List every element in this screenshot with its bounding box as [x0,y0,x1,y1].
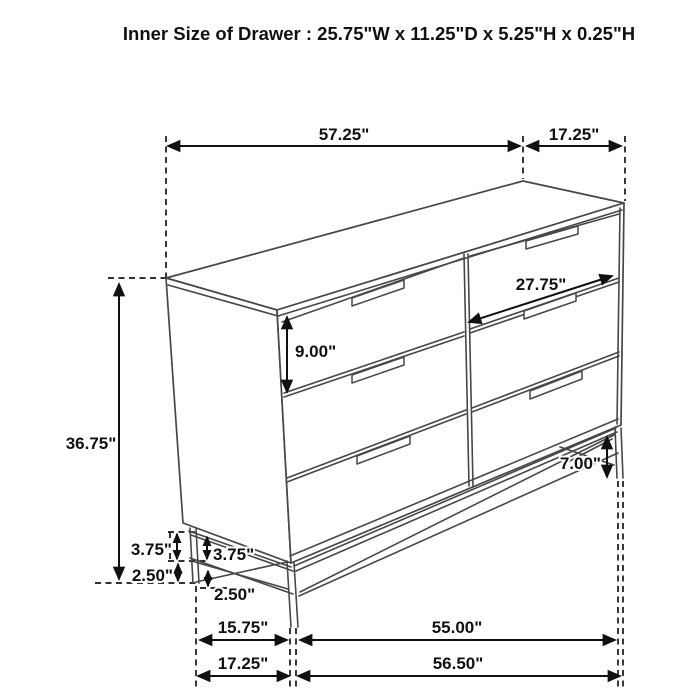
dim-label-base-clearance-front: 2.50" [214,585,255,604]
dim-label-top-width: 57.25" [319,125,370,144]
dim-label-base-clearance-rear: 2.50" [132,566,173,585]
dim-base-depth: 15.75" [200,618,287,640]
dim-label-floor-depth: 17.25" [218,654,269,673]
left-side-panel [166,278,291,563]
dim-overall-height: 36.75" [66,284,119,579]
dim-label-drawer-width: 27.75" [516,275,567,294]
dim-label-floor-width: 56.50" [433,654,484,673]
dim-label-drawer-front-height: 9.00" [295,342,336,361]
dim-floor-width: 56.50" [298,654,620,676]
dim-label-base-rail-rear: 3.75" [131,540,172,559]
dim-top-depth: 17.25" [527,125,621,146]
dim-label-base-height-right: 7.00" [560,454,601,473]
dim-label-base-width: 55.00" [432,618,483,637]
diagram-title: Inner Size of Drawer : 25.75"W x 11.25"D… [123,23,635,44]
dresser-dimension-diagram: Inner Size of Drawer : 25.75"W x 11.25"D… [0,0,700,700]
dim-base-width: 55.00" [300,618,615,640]
dim-label-base-depth: 15.75" [218,618,269,637]
dim-base-clearance-front: 2.50" [208,571,255,604]
dim-floor-depth: 17.25" [198,654,289,676]
diagram-canvas: Inner Size of Drawer : 25.75"W x 11.25"D… [0,0,700,700]
dim-label-overall-height: 36.75" [66,434,117,453]
dim-base-clearance-rear: 2.50" [132,564,178,585]
dim-top-width: 57.25" [168,125,520,146]
dim-label-base-rail-front: 3.75" [213,545,254,564]
dim-label-top-depth: 17.25" [549,125,600,144]
